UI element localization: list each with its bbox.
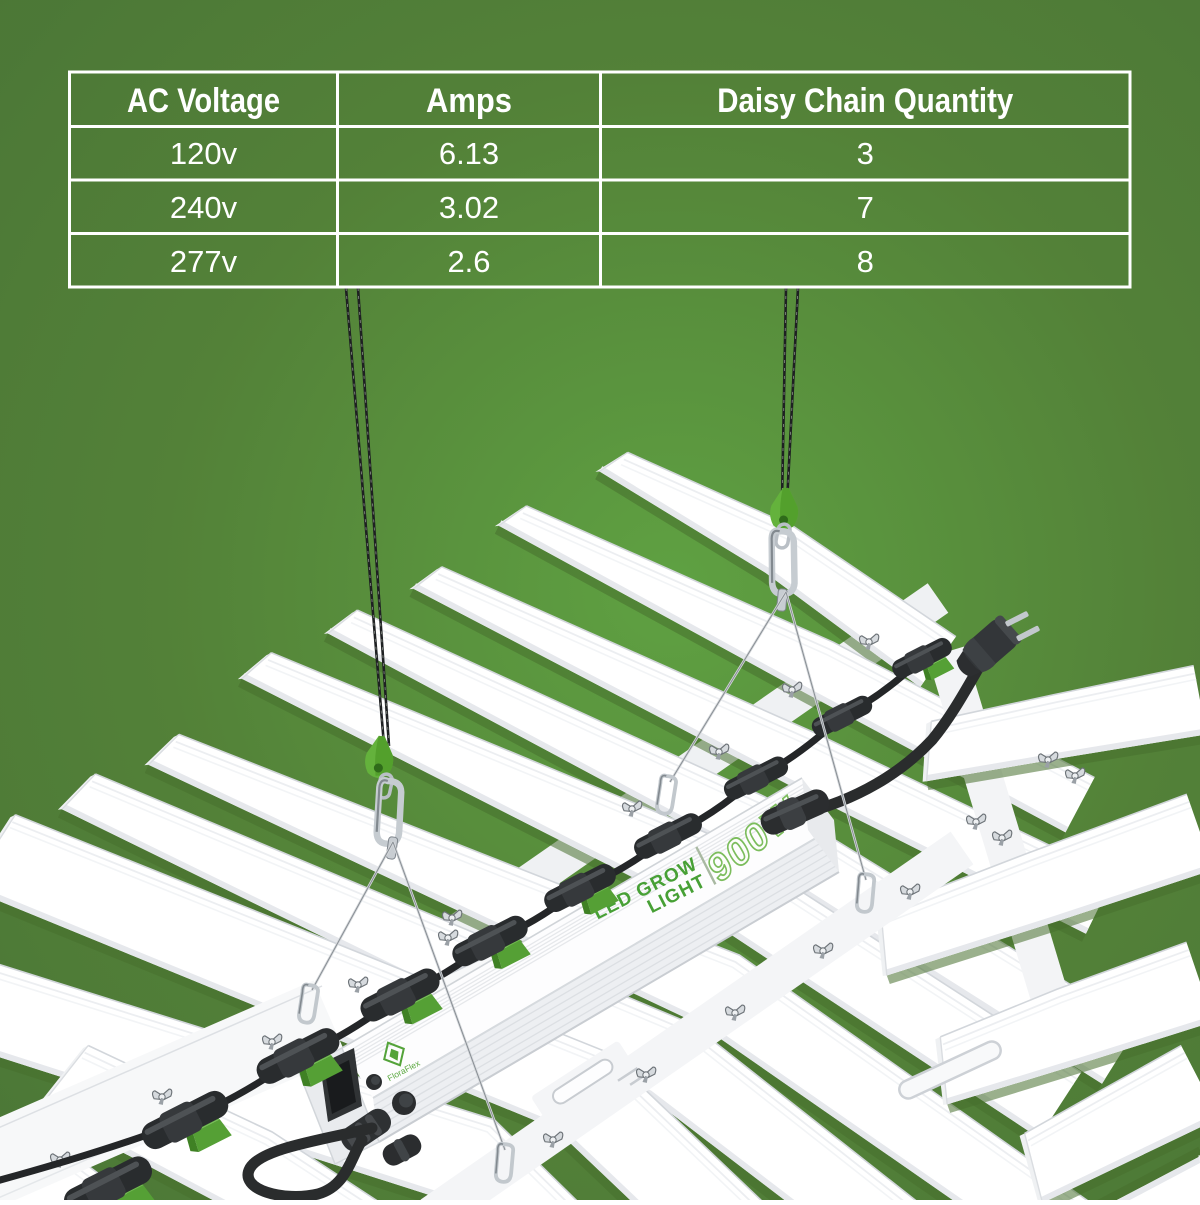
svg-text:277v: 277v	[170, 244, 238, 279]
svg-text:8: 8	[857, 244, 874, 279]
svg-text:6.13: 6.13	[439, 136, 499, 171]
svg-text:2.6: 2.6	[447, 244, 490, 279]
svg-text:Daisy Chain Quantity: Daisy Chain Quantity	[717, 82, 1013, 120]
svg-text:3: 3	[857, 136, 874, 171]
svg-text:3.02: 3.02	[439, 190, 499, 225]
svg-text:120v: 120v	[170, 136, 238, 171]
svg-text:7: 7	[857, 190, 874, 225]
svg-text:AC Voltage: AC Voltage	[127, 82, 280, 120]
svg-text:240v: 240v	[170, 190, 238, 225]
svg-text:Amps: Amps	[426, 82, 512, 120]
